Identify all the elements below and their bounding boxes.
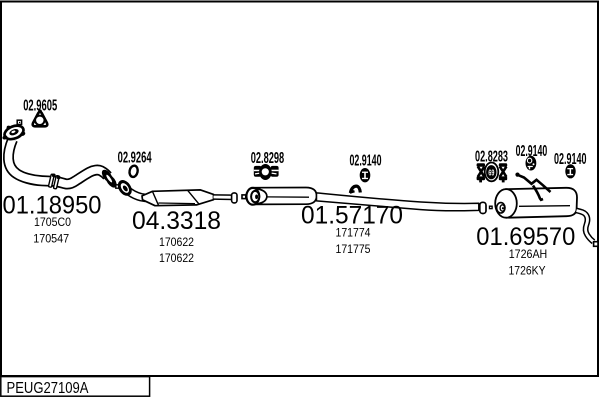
svg-text:170622: 170622: [159, 235, 194, 249]
svg-text:02.9605: 02.9605: [23, 98, 57, 115]
svg-text:1705C0: 1705C0: [34, 215, 71, 229]
svg-text:69: 69: [488, 168, 494, 178]
svg-text:PEUG27109A: PEUG27109A: [7, 380, 90, 397]
svg-text:02.9264: 02.9264: [118, 150, 152, 167]
svg-text:02.9140: 02.9140: [350, 153, 382, 170]
svg-text:1726KY: 1726KY: [509, 264, 546, 278]
svg-text:02.8283: 02.8283: [475, 149, 508, 166]
svg-text:02.8298: 02.8298: [251, 150, 285, 167]
svg-text:04.3318: 04.3318: [132, 207, 221, 235]
svg-text:02.9140: 02.9140: [554, 151, 587, 168]
svg-text:02.9140: 02.9140: [516, 143, 548, 160]
svg-text:170547: 170547: [33, 232, 69, 246]
svg-text:1726AH: 1726AH: [509, 247, 548, 261]
svg-text:170622: 170622: [159, 251, 194, 265]
svg-text:171774: 171774: [336, 226, 371, 240]
svg-text:171775: 171775: [336, 242, 371, 256]
